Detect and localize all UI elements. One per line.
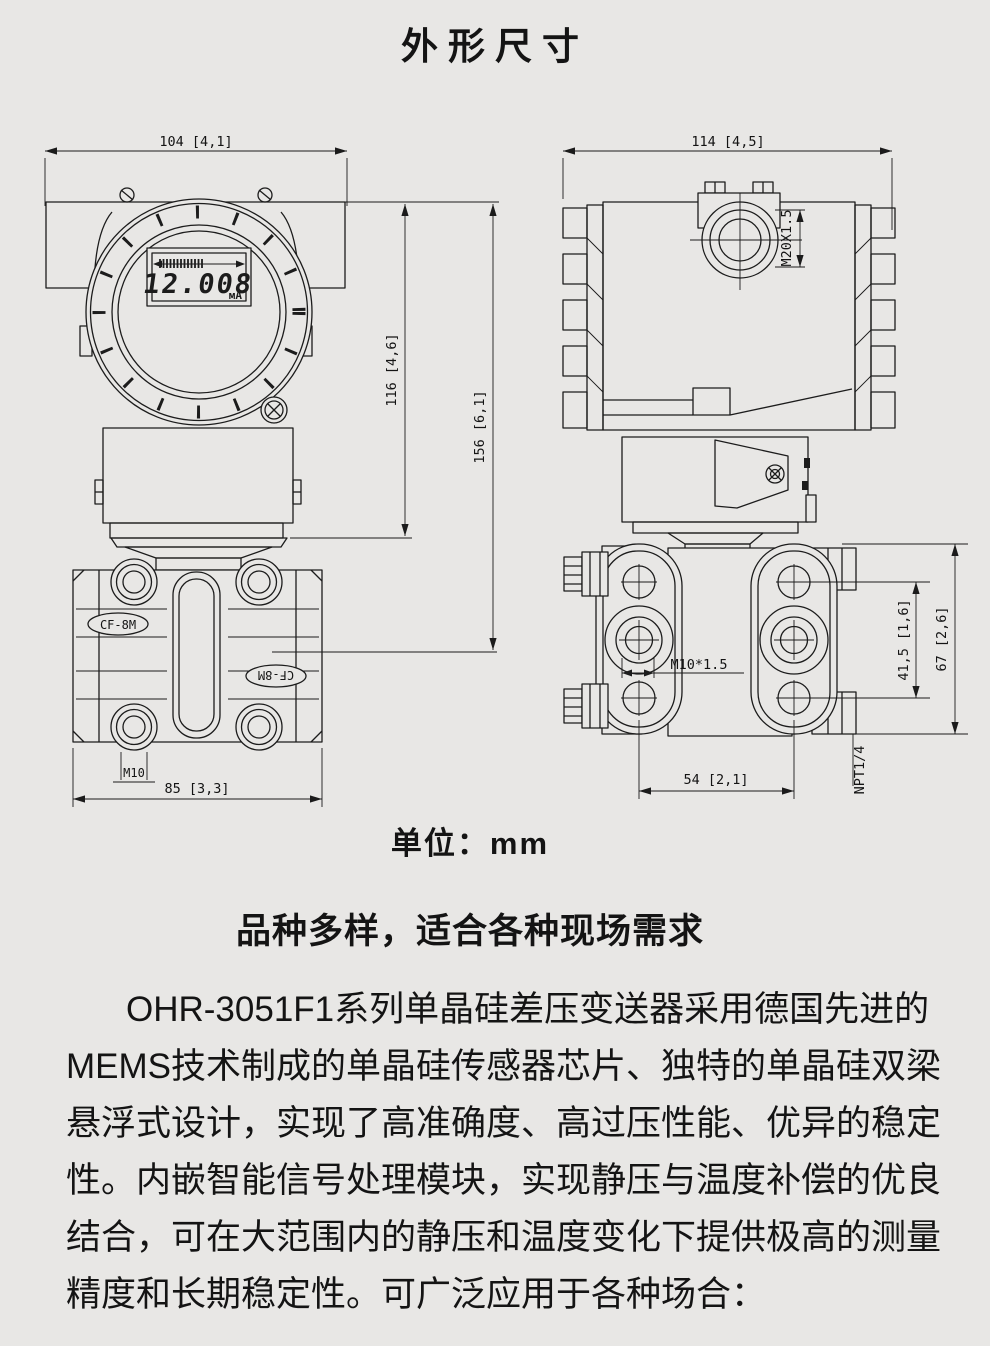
description-line: 精度和长期稳定性。可广泛应用于各种场合： bbox=[66, 1266, 924, 1323]
bolt-thread-label: M10*1.5 bbox=[671, 657, 728, 673]
material-marking-rotated: CF-8M bbox=[246, 665, 306, 687]
dimension-drawings: CF-8M CF-8M M10 bbox=[0, 120, 990, 820]
bolt-callout: M10 bbox=[113, 752, 155, 782]
conduit-thread-label: M20X1.5 bbox=[779, 210, 795, 267]
flange-bolt bbox=[111, 704, 157, 750]
description-line: 悬浮式设计，实现了高准确度、高过压性能、优异的稳定 bbox=[66, 1095, 924, 1152]
dim-flange-height-label: 67 [2,6] bbox=[934, 606, 950, 671]
dim-width-label: 104 [4,1] bbox=[159, 134, 232, 150]
dim-total-height-label: 156 [6,1] bbox=[472, 390, 488, 463]
page-title: 外形尺寸 bbox=[0, 16, 990, 70]
left-process-boss bbox=[596, 544, 682, 734]
vent-drain-plug bbox=[564, 684, 608, 728]
description-line: MEMS技术制成的单晶硅传感器芯片、独特的单晶硅双梁 bbox=[66, 1038, 924, 1095]
product-spec-page: { "page": { "title": "外形尺寸", "unit_label… bbox=[0, 0, 990, 1346]
dim-housing-height-label: 116 [4,6] bbox=[384, 333, 400, 406]
nameplate-bracket bbox=[603, 388, 852, 415]
dim-flange-width-label: 85 [3,3] bbox=[164, 781, 229, 797]
lcd-unit-label: мА bbox=[229, 289, 243, 302]
bolt-thread-label: M10 bbox=[123, 766, 145, 780]
dim-width-label: 114 [4,5] bbox=[691, 134, 764, 150]
front-view-drawing: CF-8M CF-8M M10 bbox=[0, 120, 512, 820]
description-paragraph: OHR-3051F1系列单晶硅差压变送器采用德国先进的 MEMS技术制成的单晶硅… bbox=[66, 981, 924, 1323]
sensor-neck bbox=[622, 437, 816, 552]
drain-vent-thread-label: NPT1/4 bbox=[852, 746, 868, 795]
left-end-cap bbox=[563, 205, 603, 430]
material-marking-label: CF-8M bbox=[258, 668, 294, 682]
description-line: 结合，可在大范围内的静压和温度变化下提供极高的测量 bbox=[66, 1209, 924, 1266]
side-view-drawing: 114 [4,5] M20X1.5 M10*1.5 41,5 [1,6] 67 … bbox=[512, 120, 990, 820]
description-line: 性。内嵌智能信号处理模块，实现静压与温度补偿的优良 bbox=[66, 1152, 924, 1209]
flange-bolt bbox=[111, 559, 157, 605]
material-marking-label: CF-8M bbox=[100, 618, 136, 632]
section-subtitle: 品种多样，适合各种现场需求 bbox=[0, 903, 940, 954]
cover-lock-screw bbox=[261, 397, 287, 423]
housing-side bbox=[563, 182, 895, 430]
unit-label: 单位：mm bbox=[0, 818, 940, 863]
flange-bolt bbox=[236, 559, 282, 605]
sensor-body bbox=[95, 428, 301, 570]
description-line: OHR-3051F1系列单晶硅差压变送器采用德国先进的 bbox=[66, 981, 924, 1038]
right-end-cap bbox=[855, 205, 895, 430]
display-housing: 12.008 мА bbox=[86, 199, 312, 425]
dim-bolt-row-spacing-label: 41,5 [1,6] bbox=[896, 599, 912, 680]
right-process-boss bbox=[751, 544, 837, 734]
lcd-display: 12.008 мА bbox=[141, 248, 255, 306]
dim-bolt-spacing-label: 54 [2,1] bbox=[683, 772, 748, 788]
flange-side bbox=[564, 544, 856, 736]
vent-drain-plug bbox=[564, 552, 608, 596]
flange-center-slot bbox=[173, 572, 220, 738]
material-marking: CF-8M bbox=[88, 613, 148, 635]
flange-bolt bbox=[236, 704, 282, 750]
flange-block: CF-8M CF-8M M10 bbox=[73, 559, 322, 782]
